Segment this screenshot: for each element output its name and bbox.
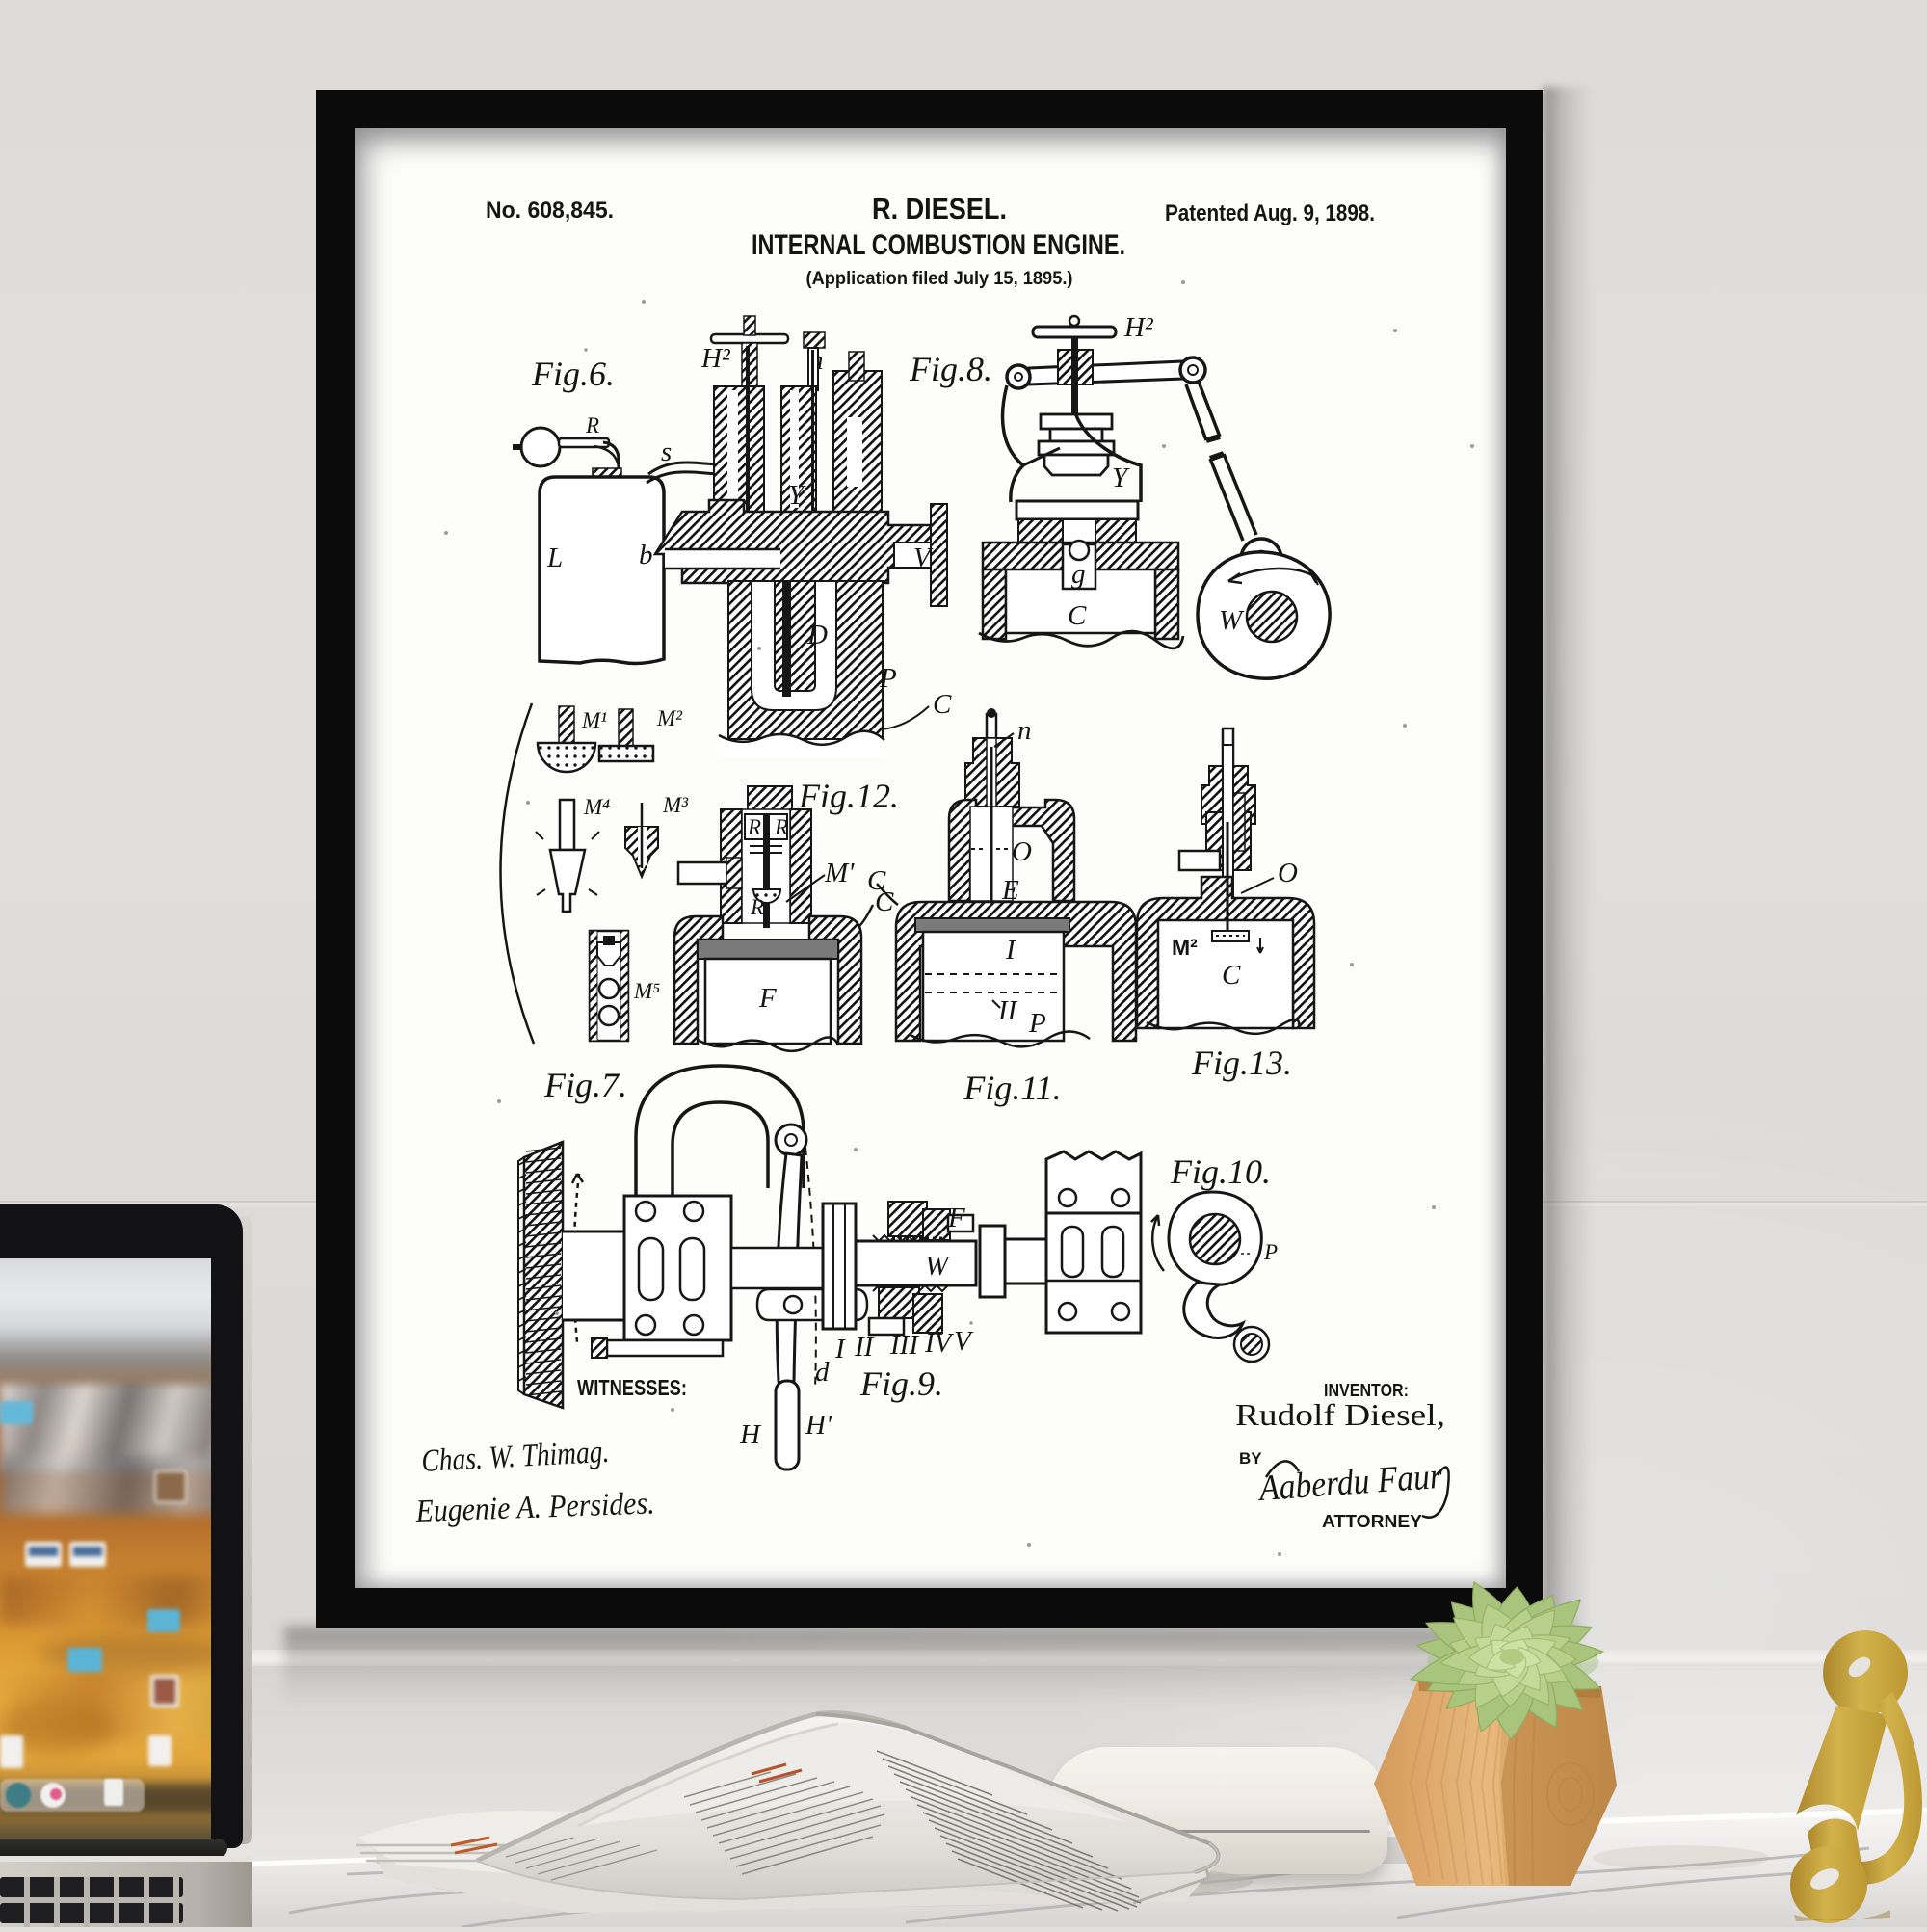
svg-text:s: s [661,437,672,467]
svg-text:M': M' [824,858,855,888]
svg-text:V: V [954,1326,974,1357]
svg-text:M²: M² [1172,935,1198,960]
svg-text:H²: H² [700,343,731,374]
svg-text:Fig.6.: Fig.6. [531,355,615,393]
svg-text:P: P [1028,1008,1046,1039]
svg-text:M¹: M¹ [581,708,607,732]
svg-text:F: F [947,1203,965,1233]
svg-text:H²: H² [1123,312,1154,343]
svg-text:Fig.9.: Fig.9. [859,1364,943,1403]
svg-text:n: n [1017,715,1032,746]
svg-text:M⁵: M⁵ [633,979,660,1003]
svg-text:III: III [889,1330,919,1361]
svg-text:F: F [758,983,777,1014]
svg-text:M²: M² [656,706,683,730]
svg-text:R: R [585,413,599,437]
svg-text:P: P [1263,1240,1278,1264]
svg-text:W: W [925,1251,951,1282]
svg-text:ATTORNEY: ATTORNEY [1322,1512,1422,1531]
svg-text:(Application filed July 15, 18: (Application filed July 15, 1895.) [806,269,1073,289]
svg-text:INTERNAL COMBUSTION ENGINE.: INTERNAL COMBUSTION ENGINE. [752,229,1125,261]
svg-text:IV: IV [924,1328,955,1359]
svg-text:Fig.11.: Fig.11. [963,1069,1061,1107]
svg-text:Fig.10.: Fig.10. [1170,1152,1271,1191]
svg-text:Fig.8.: Fig.8. [909,350,992,388]
svg-text:R: R [747,815,761,839]
svg-text:D: D [806,620,828,650]
svg-text:Y: Y [1112,463,1130,493]
svg-text:I: I [1005,935,1016,966]
svg-text:R. DIESEL.: R. DIESEL. [872,192,1007,225]
svg-text:No. 608,845.: No. 608,845. [486,198,614,224]
svg-text:C: C [933,689,952,720]
svg-text:g: g [1071,559,1086,590]
svg-text:b: b [639,540,653,570]
svg-text:II: II [997,995,1018,1026]
svg-text:I: I [834,1334,846,1364]
svg-text:d: d [815,1357,830,1388]
svg-text:L: L [546,543,563,573]
svg-text:P: P [879,663,897,694]
svg-text:C: C [1068,600,1087,631]
svg-text:R: R [774,815,788,839]
svg-text:M⁴: M⁴ [583,795,610,819]
svg-text:W: W [1219,605,1245,636]
svg-text:Chas. W. Thimag.: Chas. W. Thimag. [421,1435,611,1479]
svg-text:Patented Aug. 9, 1898.: Patented Aug. 9, 1898. [1165,200,1375,226]
svg-text:H: H [739,1419,762,1450]
svg-text:Rudolf Diesel,: Rudolf Diesel, [1235,1397,1445,1432]
svg-text:M³: M³ [662,793,689,817]
svg-text:Fig.12.: Fig.12. [798,777,899,815]
svg-text:O: O [1012,836,1032,867]
svg-text:Eugenie A. Persides.: Eugenie A. Persides. [414,1486,655,1529]
svg-text:BY: BY [1239,1449,1262,1468]
svg-text:O: O [1278,858,1298,888]
svg-text:R: R [750,895,764,919]
svg-text:Aaberdu Faur: Aaberdu Faur [1255,1456,1443,1509]
svg-text:Fig.13.: Fig.13. [1191,1044,1292,1082]
svg-text:Fig.7.: Fig.7. [543,1066,627,1104]
svg-text:C: C [1222,960,1241,991]
svg-text:H': H' [805,1410,832,1441]
svg-text:II: II [854,1332,875,1363]
svg-text:WITNESSES:: WITNESSES: [577,1375,687,1400]
